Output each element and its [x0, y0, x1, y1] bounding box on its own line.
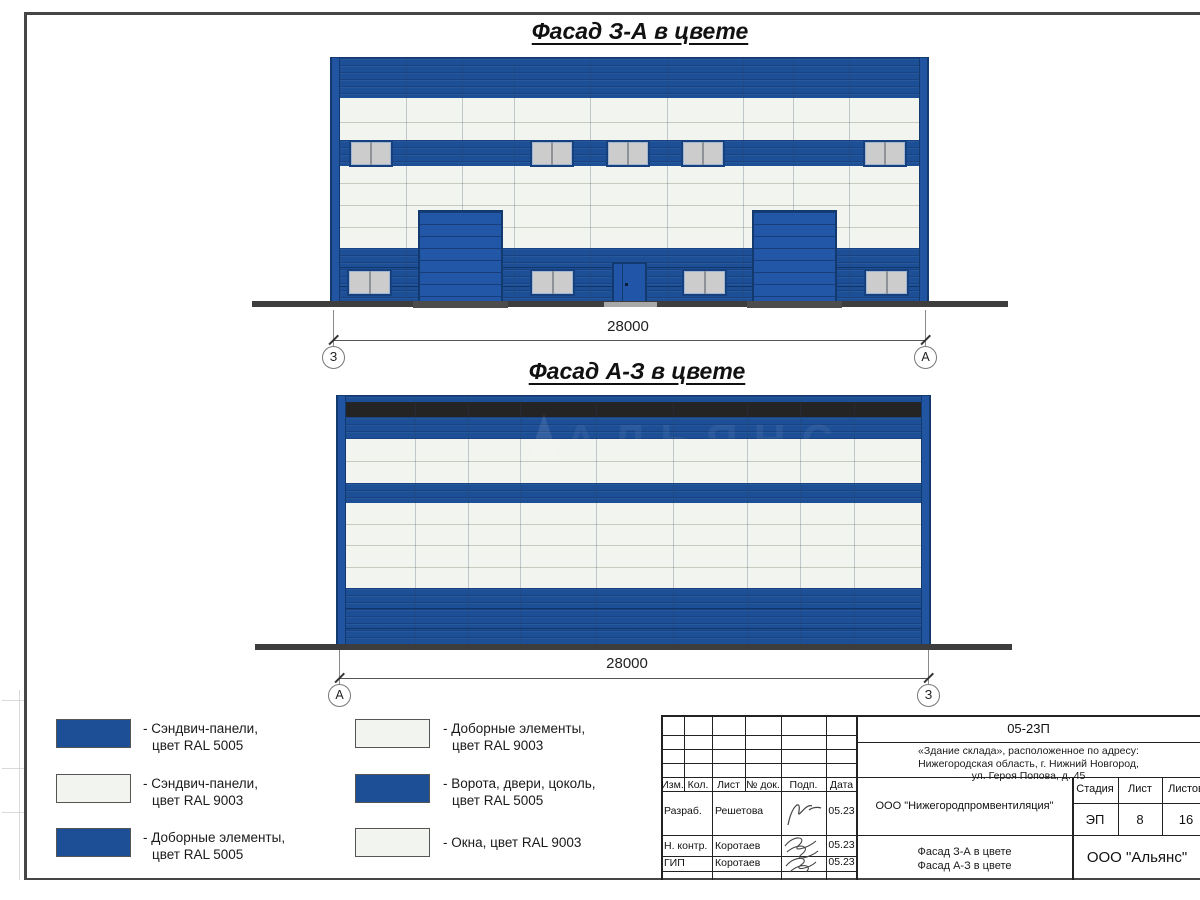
sig-name: Коротаев	[715, 840, 760, 852]
window	[681, 140, 725, 167]
corner-trim	[919, 58, 928, 306]
facade1-building	[331, 58, 928, 306]
gate-threshold	[413, 301, 508, 308]
stage-col-header: Листов	[1162, 783, 1200, 795]
window	[530, 140, 574, 167]
legend-label: - Ворота, двери, цоколь,цвет RAL 5005	[443, 776, 596, 809]
col-header: № док.	[745, 779, 781, 791]
sig-role: ГИП	[664, 857, 685, 869]
margin-line	[19, 690, 20, 880]
margin-line	[2, 768, 24, 769]
window	[863, 140, 907, 167]
legend-label: - Сэндвич-панели,цвет RAL 5005	[143, 721, 258, 754]
socle-band	[337, 588, 930, 648]
facade2-building: АЛЬЯНС	[337, 396, 930, 648]
axis-marker: З	[917, 684, 940, 707]
legend-swatch	[56, 774, 131, 803]
extension-line	[925, 310, 926, 348]
sheet-number: 8	[1118, 812, 1162, 827]
frame-bottom	[24, 878, 1200, 881]
legend-swatch	[56, 719, 131, 748]
col-header: Кол.	[684, 779, 712, 791]
dimension-line	[339, 678, 928, 679]
design-company: ООО "Нижегородпромвентиляция"	[857, 800, 1072, 812]
sectional-gate	[752, 210, 837, 304]
watermark-logo-icon	[529, 414, 559, 458]
stage-col-header: Стадия	[1072, 783, 1118, 795]
corner-trim	[331, 58, 340, 306]
panel-band	[337, 503, 930, 588]
legend-label: - Сэндвич-панели,цвет RAL 9003	[143, 776, 258, 809]
legend-label: - Доборные элементы,цвет RAL 5005	[143, 830, 285, 863]
sig-date: 05.23	[826, 856, 857, 868]
col-header: Подп.	[781, 779, 826, 791]
margin-line	[2, 700, 24, 701]
sheet-title: Фасад З-А в цвете Фасад А-З в цвете	[857, 845, 1072, 873]
ground-line	[255, 644, 1012, 650]
margin-line	[2, 812, 24, 813]
col-header: Изм.	[661, 779, 684, 791]
sig-role: Разраб.	[664, 805, 702, 817]
signature-icon	[780, 832, 826, 876]
dimension-value: 28000	[527, 655, 727, 672]
legend-label: - Окна, цвет RAL 9003	[443, 835, 581, 852]
window	[347, 269, 392, 296]
signature-icon	[782, 793, 825, 833]
frame-left	[24, 12, 27, 880]
window	[530, 269, 575, 296]
sig-role: Н. контр.	[664, 840, 707, 852]
extension-line	[333, 310, 334, 348]
sig-date: 05.23	[826, 839, 857, 851]
facade1-title: Фасад З-А в цвете	[340, 18, 940, 45]
door-threshold	[604, 302, 657, 307]
drawing-sheet: { "facade1": {"title": "Фасад З-А в цвет…	[0, 0, 1200, 900]
window	[606, 140, 650, 167]
window	[682, 269, 727, 296]
sectional-gate	[418, 210, 503, 304]
client-org: ООО "Альянс"	[1074, 849, 1200, 866]
frame-top	[24, 12, 1200, 15]
extension-line	[928, 650, 929, 686]
gate-threshold	[747, 301, 842, 308]
panel-band	[331, 58, 928, 98]
watermark-text: АЛЬЯНС	[565, 416, 849, 466]
panel-band	[337, 483, 930, 503]
dimension-line	[333, 340, 925, 341]
sig-name: Коротаев	[715, 857, 760, 869]
extension-line	[339, 650, 340, 686]
facade2-title: Фасад А-З в цвете	[337, 358, 937, 385]
project-code: 05-23П	[857, 721, 1200, 736]
stage-col-header: Лист	[1118, 783, 1162, 795]
legend-label: - Доборные элементы,цвет RAL 9003	[443, 721, 585, 754]
corner-trim	[337, 396, 346, 648]
project-address: «Здание склада», расположенное по адресу…	[857, 745, 1200, 783]
dimension-value: 28000	[528, 318, 728, 335]
legend-swatch	[355, 828, 430, 857]
door-handle-icon	[625, 283, 628, 286]
legend-swatch	[355, 719, 430, 748]
window	[864, 269, 909, 296]
parapet-band	[337, 402, 930, 417]
sheets-total: 16	[1162, 812, 1200, 827]
panel-band	[331, 98, 928, 140]
window	[349, 140, 393, 167]
sig-date: 05.23	[826, 805, 857, 817]
entrance-door	[612, 262, 647, 304]
sig-name: Решетова	[715, 805, 763, 817]
col-header: Дата	[826, 779, 857, 791]
col-header: Лист	[712, 779, 745, 791]
legend-swatch	[56, 828, 131, 857]
corner-trim	[921, 396, 930, 648]
stage-value: ЭП	[1072, 812, 1118, 827]
axis-marker: А	[328, 684, 351, 707]
legend-swatch	[355, 774, 430, 803]
